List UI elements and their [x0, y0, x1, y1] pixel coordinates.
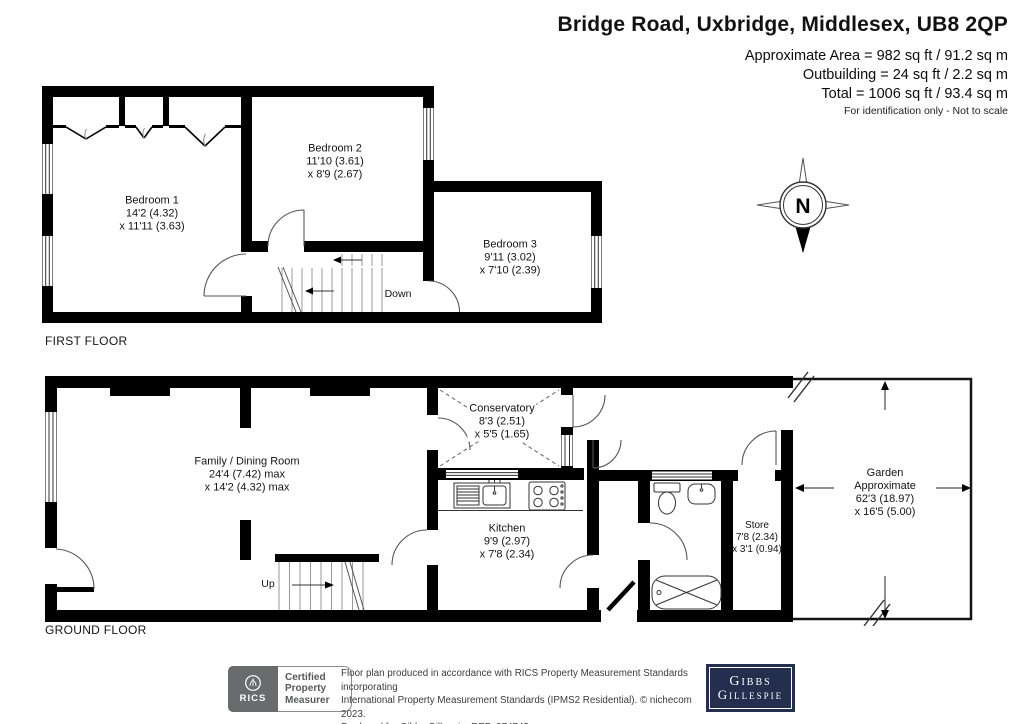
room-dim: x 8'9 (2.67): [306, 169, 364, 182]
room-dim: 7'8 (2.34): [732, 532, 782, 544]
room-dim: 24'4 (7.42) max: [194, 469, 299, 482]
footer: RICS Certified Property Measurer Floor p…: [0, 660, 1024, 720]
room-label-store: Store 7'8 (2.34) x 3'1 (0.94): [732, 520, 782, 556]
stairs-down-label: Down: [385, 288, 412, 300]
room-name: Garden: [854, 467, 916, 480]
room-dim: x 16'5 (5.00): [854, 506, 916, 519]
rics-logo: RICS: [228, 666, 278, 712]
gibbs-gillespie-logo: Gibbs Gillespie: [706, 664, 795, 712]
room-label-bedroom-2: Bedroom 2 11'10 (3.61) x 8'9 (2.67): [306, 143, 364, 182]
gibbs-gillespie-logo-frame: Gibbs Gillespie: [709, 667, 792, 709]
room-label-kitchen: Kitchen 9'9 (2.97) x 7'8 (2.34): [480, 523, 535, 562]
identification-note: For identification only - Not to scale: [844, 105, 1008, 117]
ground-floor-windows: [46, 412, 713, 502]
bathroom-fixtures: [652, 483, 721, 609]
hob-icon: [529, 482, 565, 510]
stairs-up-label: Up: [261, 578, 274, 590]
floorplan-page: Bridge Road, Uxbridge, Middlesex, UB8 2Q…: [0, 0, 1024, 724]
compass-north-label: N: [795, 195, 810, 218]
outbuilding-area: Outbuilding = 24 sq ft / 2.2 sq m: [745, 66, 1008, 85]
room-dim: x 7'8 (2.34): [480, 549, 535, 562]
room-label-conservatory: Conservatory 8'3 (2.51) x 5'5 (1.65): [467, 403, 536, 442]
compass-rose: N: [743, 145, 863, 265]
room-dim: x 5'5 (1.65): [469, 429, 534, 442]
room-dim: 62'3 (18.97): [854, 493, 916, 506]
room-name: Bedroom 3: [480, 239, 541, 252]
sink-icon: [454, 480, 510, 508]
first-floor-plan: Bedroom 1 14'2 (4.32) x 11'11 (3.63) Bed…: [42, 86, 602, 331]
footer-disclaimer: Floor plan produced in accordance with R…: [341, 667, 701, 724]
first-floor-caption: FIRST FLOOR: [45, 334, 127, 348]
rics-label: RICS: [240, 693, 267, 704]
room-dim: 14'2 (4.32): [119, 208, 184, 221]
room-dim: x 14'2 (4.32) max: [194, 482, 299, 495]
disclaimer-line: Floor plan produced in accordance with R…: [341, 667, 701, 694]
ground-floor-plan: Family / Dining Room 24'4 (7.42) max x 1…: [42, 370, 982, 626]
disclaimer-line: International Property Measurement Stand…: [341, 694, 701, 721]
logo-line: Gillespie: [718, 688, 783, 701]
room-label-family-dining: Family / Dining Room 24'4 (7.42) max x 1…: [194, 456, 299, 495]
toilet-icon: [654, 483, 680, 514]
total-area: Total = 1006 sq ft / 93.4 sq m: [745, 85, 1008, 104]
ground-floor-gaps: [601, 610, 637, 622]
basin-icon: [688, 484, 715, 504]
ground-floor-walls: [45, 376, 793, 622]
room-dim: 11'10 (3.61): [306, 156, 364, 169]
room-name: Bedroom 2: [306, 143, 364, 156]
rics-lion-icon: [244, 674, 262, 692]
area-summary: Approximate Area = 982 sq ft / 91.2 sq m…: [745, 47, 1008, 104]
room-dim: 9'11 (3.02): [480, 252, 541, 265]
wardrobe-doors: [53, 127, 241, 147]
room-name: Kitchen: [480, 523, 535, 536]
room-dim: x 3'1 (0.94): [732, 544, 782, 556]
room-dim: x 11'11 (3.63): [119, 221, 184, 234]
room-label-bedroom-3: Bedroom 3 9'11 (3.02) x 7'10 (2.39): [480, 239, 541, 278]
room-dim: x 7'10 (2.39): [480, 265, 541, 278]
room-name: Bedroom 1: [119, 195, 184, 208]
open-door-leaves: [608, 582, 634, 610]
room-dim: 8'3 (2.51): [469, 416, 534, 429]
room-dim: 9'9 (2.97): [480, 536, 535, 549]
room-label-bedroom-1: Bedroom 1 14'2 (4.32) x 11'11 (3.63): [119, 195, 184, 234]
ground-floor-caption: GROUND FLOOR: [45, 623, 147, 637]
kitchen-counter: [438, 480, 583, 511]
page-title: Bridge Road, Uxbridge, Middlesex, UB8 2Q…: [558, 13, 1008, 37]
room-name: Store: [732, 520, 782, 532]
compass-south-pointer: [796, 227, 811, 253]
bathtub-icon: [652, 576, 721, 609]
room-name: Family / Dining Room: [194, 456, 299, 469]
room-label-garden: Garden Approximate 62'3 (18.97) x 16'5 (…: [854, 467, 916, 519]
rics-certification-badge: RICS Certified Property Measurer: [228, 666, 352, 712]
room-dim: Approximate: [854, 480, 916, 493]
staircase-down: [278, 254, 382, 312]
approximate-area: Approximate Area = 982 sq ft / 91.2 sq m: [745, 47, 1008, 66]
room-name: Conservatory: [469, 403, 534, 416]
staircase-up: [279, 562, 364, 610]
